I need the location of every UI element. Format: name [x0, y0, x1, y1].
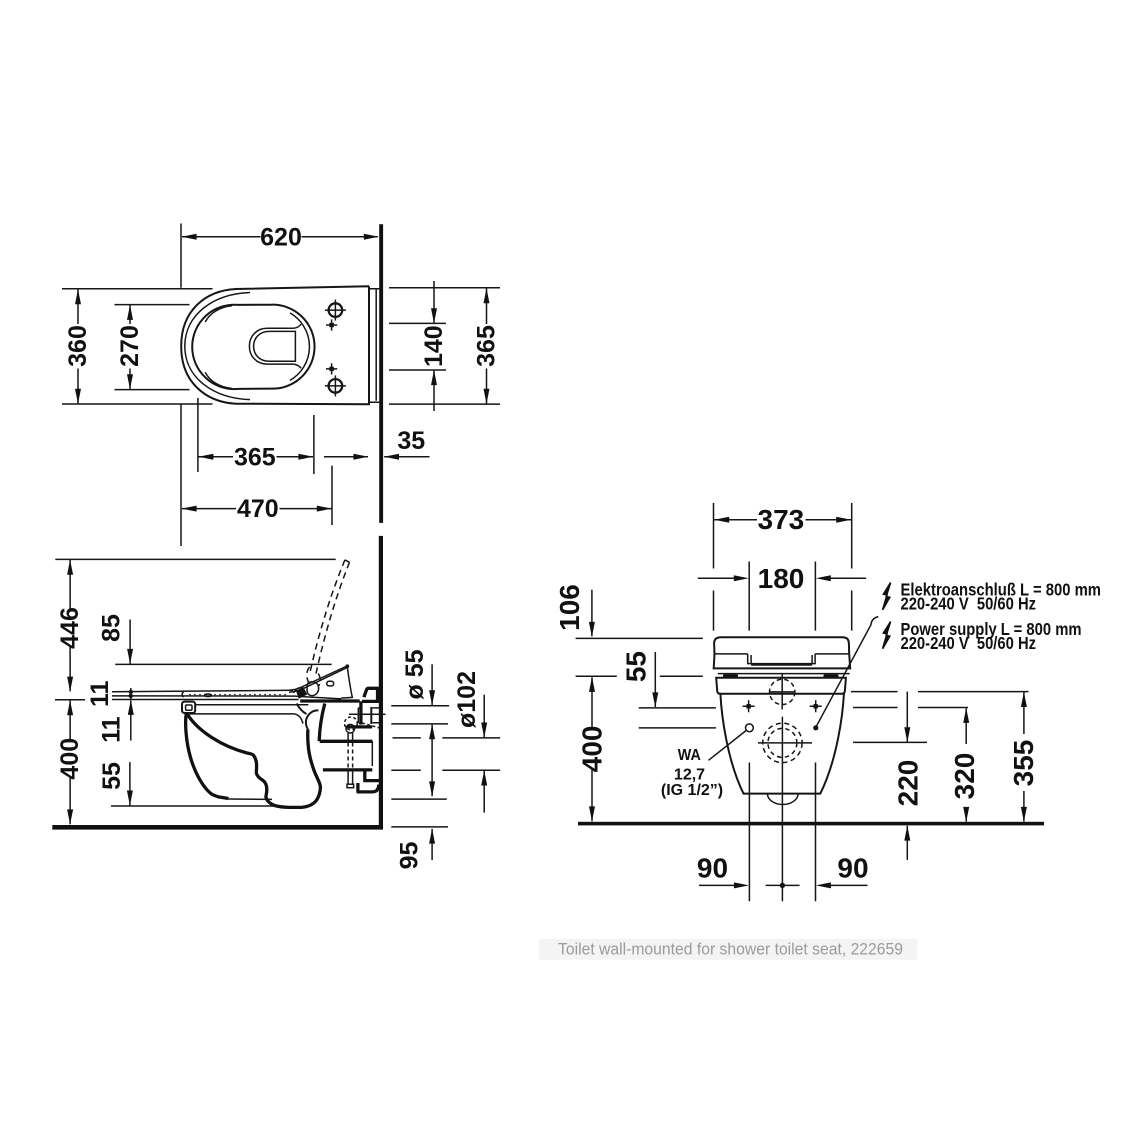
svg-text:106: 106: [554, 584, 585, 631]
svg-text:55: 55: [98, 762, 126, 790]
svg-text:55: 55: [620, 651, 651, 682]
svg-text:140: 140: [420, 325, 448, 367]
svg-text:355: 355: [1008, 740, 1039, 787]
svg-text:320: 320: [949, 753, 980, 800]
svg-text:95: 95: [396, 842, 424, 870]
svg-text:220: 220: [892, 760, 923, 807]
svg-text:Toilet wall-mounted for shower: Toilet wall-mounted for shower toilet se…: [558, 940, 903, 959]
svg-text:11: 11: [97, 716, 125, 743]
svg-text:400: 400: [577, 726, 608, 773]
svg-text:400: 400: [56, 738, 84, 780]
svg-text:85: 85: [98, 614, 126, 642]
svg-text:620: 620: [260, 223, 302, 251]
svg-text:446: 446: [56, 607, 84, 649]
svg-text:90: 90: [697, 852, 728, 883]
svg-text:365: 365: [473, 325, 501, 367]
svg-text:220-240 V 50/60 Hz: 220-240 V 50/60 Hz: [901, 594, 1037, 614]
svg-text:90: 90: [837, 852, 868, 883]
svg-text:(IG 1/2”): (IG 1/2”): [661, 782, 723, 799]
svg-text:11: 11: [86, 680, 114, 707]
svg-text:WA: WA: [678, 747, 701, 764]
svg-text:373: 373: [758, 504, 805, 535]
svg-text:ø102: ø102: [453, 671, 481, 728]
svg-text:220-240 V 50/60 Hz: 220-240 V 50/60 Hz: [901, 633, 1037, 653]
svg-text:360: 360: [64, 325, 92, 367]
svg-text:270: 270: [116, 325, 144, 367]
svg-text:35: 35: [397, 427, 425, 455]
svg-text:365: 365: [234, 443, 276, 471]
svg-text:ø 55: ø 55: [401, 649, 429, 699]
svg-text:180: 180: [758, 563, 805, 594]
svg-text:470: 470: [237, 495, 279, 523]
